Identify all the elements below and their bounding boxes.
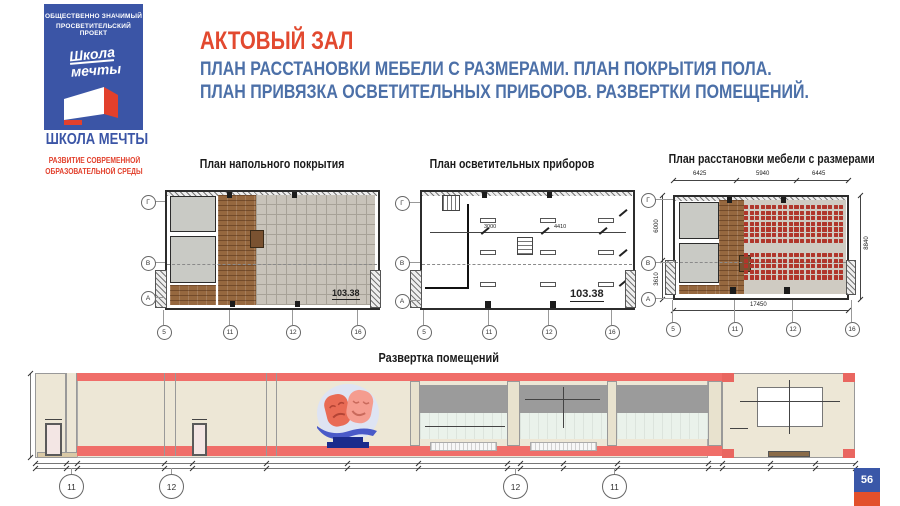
seat [750, 205, 754, 209]
seat [778, 239, 782, 243]
seat [783, 211, 787, 215]
seat [806, 216, 810, 220]
page-number-accent [854, 492, 880, 506]
light-fixture [540, 250, 556, 255]
logo-tagline-line2: ОБРАЗОВАТЕЛЬНОЙ СРЕДЫ [36, 167, 152, 176]
plan-furniture-title: План расстановки мебели с размерами [647, 152, 897, 166]
seat [789, 233, 793, 237]
seat [828, 205, 832, 209]
seat [755, 239, 759, 243]
seat [839, 216, 843, 220]
seat [828, 264, 832, 268]
seat [766, 270, 770, 274]
seat [794, 259, 798, 263]
seat [789, 270, 793, 274]
seat [761, 222, 765, 226]
elevation-title: Развертка помещений [364, 350, 514, 365]
elevation-drawing: 11121211 [25, 368, 885, 506]
axis-col-5: 5 [417, 325, 432, 340]
seat [766, 233, 770, 237]
light-fixture [480, 282, 496, 287]
page-subtitle-line2: ПЛАН ПРИВЯЗКА ОСВЕТИТЕЛЬНЫХ ПРИБОРОВ. РА… [200, 81, 900, 104]
page-title: АКТОВЫЙ ЗАЛ [200, 27, 387, 56]
light-fixture [598, 282, 614, 287]
axis-row-А: А [395, 294, 410, 309]
seat [750, 259, 754, 263]
seat [750, 239, 754, 243]
seat [800, 205, 804, 209]
seat [811, 239, 815, 243]
seat [750, 233, 754, 237]
seat [750, 264, 754, 268]
seat [828, 253, 832, 257]
seat [839, 275, 843, 279]
slide: ОБЩЕСТВЕННО ЗНАЧИМЫЙ ПРОСВЕТИТЕЛЬСКИЙ ПР… [0, 0, 900, 506]
seat [811, 275, 815, 279]
plan-floor-area-label: 103.38 [332, 288, 360, 300]
seat [783, 270, 787, 274]
seat [778, 264, 782, 268]
seat [744, 275, 748, 279]
dim-top-1: 6425 [693, 171, 706, 177]
seat [783, 264, 787, 268]
seat [828, 259, 832, 263]
seat [772, 275, 776, 279]
seat [744, 216, 748, 220]
elevation-axis-11: 11 [59, 474, 84, 499]
seat [755, 275, 759, 279]
seat [783, 259, 787, 263]
dim-left-bottom: 3610 [654, 264, 660, 294]
seat [806, 275, 810, 279]
seat [744, 270, 748, 274]
seat [750, 275, 754, 279]
seat [800, 264, 804, 268]
seat [822, 270, 826, 274]
seat [772, 239, 776, 243]
seat [761, 227, 765, 231]
seat [778, 211, 782, 215]
seat [828, 233, 832, 237]
plan-lighting-drawing: 3000 4410 103.38 ГВА5111216 [395, 183, 640, 343]
light-fixture [540, 218, 556, 223]
seat [806, 253, 810, 257]
seat [755, 216, 759, 220]
seat [750, 227, 754, 231]
axis-col-16: 16 [605, 325, 620, 340]
seat [744, 239, 748, 243]
page-subtitle-line1: ПЛАН РАССТАНОВКИ МЕБЕЛИ С РАЗМЕРАМИ. ПЛА… [200, 58, 897, 81]
seat [834, 222, 838, 226]
dim-left-top: 6000 [654, 211, 660, 241]
logo-brand: ШКОЛА МЕЧТЫ [36, 131, 152, 149]
dim-bottom: 17450 [750, 302, 767, 308]
seat [778, 275, 782, 279]
seat [839, 205, 843, 209]
seat [755, 253, 759, 257]
light-fixture [540, 282, 556, 287]
seat [761, 211, 765, 215]
plan-lighting-dim-b: 4410 [554, 224, 566, 230]
seat [755, 233, 759, 237]
plan-floor-drawing: 103.38 ГВА5111216 [140, 183, 390, 343]
seat [811, 211, 815, 215]
seat [822, 264, 826, 268]
seat [744, 253, 748, 257]
seat [834, 205, 838, 209]
seat [817, 239, 821, 243]
logo-tagline-line1: РАЗВИТИЕ СОВРЕМЕННОЙ [36, 156, 152, 165]
seat [778, 216, 782, 220]
seat [839, 253, 843, 257]
seat [822, 253, 826, 257]
axis-col-16: 16 [845, 322, 860, 337]
door-1 [45, 423, 62, 456]
seat [839, 211, 843, 215]
seat [811, 259, 815, 263]
seat [789, 275, 793, 279]
light-fixture [598, 250, 614, 255]
seat [811, 233, 815, 237]
seat [794, 264, 798, 268]
seat [772, 264, 776, 268]
seat [794, 275, 798, 279]
seat [811, 222, 815, 226]
seat [755, 222, 759, 226]
light-fixture [480, 218, 496, 223]
seat [761, 253, 765, 257]
logo-project-line2: ПРОСВЕТИТЕЛЬСКИЙ ПРОЕКТ [44, 23, 143, 37]
seat [800, 275, 804, 279]
axis-col-5: 5 [666, 322, 681, 337]
logo-project-line1: ОБЩЕСТВЕННО ЗНАЧИМЫЙ [44, 13, 143, 20]
axis-col-12: 12 [786, 322, 801, 337]
page-number-badge: 56 [854, 468, 880, 492]
light-fixture [480, 250, 496, 255]
seat [800, 222, 804, 226]
axis-col-11: 11 [223, 325, 238, 340]
seat [822, 275, 826, 279]
seat-grid-upper [744, 205, 843, 243]
axis-row-В: В [141, 256, 156, 271]
seat [766, 205, 770, 209]
seat [839, 233, 843, 237]
theater-masks-icon [313, 382, 383, 450]
seat [766, 239, 770, 243]
seat [766, 264, 770, 268]
seat [794, 233, 798, 237]
seat [800, 227, 804, 231]
seat [800, 211, 804, 215]
seat [817, 270, 821, 274]
seat [794, 205, 798, 209]
seat [834, 253, 838, 257]
seat [800, 259, 804, 263]
seat [761, 216, 765, 220]
axis-row-В: В [641, 256, 656, 271]
seat [828, 239, 832, 243]
axis-col-11: 11 [728, 322, 743, 337]
seat [755, 264, 759, 268]
seat [755, 227, 759, 231]
seat [766, 253, 770, 257]
seat [817, 205, 821, 209]
seat [750, 216, 754, 220]
seat [772, 259, 776, 263]
seat [839, 270, 843, 274]
seat [794, 211, 798, 215]
seat [789, 239, 793, 243]
seat [783, 216, 787, 220]
seat [744, 264, 748, 268]
seat [806, 259, 810, 263]
elevation-axis-11: 11 [602, 474, 627, 499]
seat [766, 222, 770, 226]
seat [811, 227, 815, 231]
dim-right: 8840 [864, 228, 870, 258]
seat [744, 233, 748, 237]
seat [789, 264, 793, 268]
seat [828, 222, 832, 226]
seat [817, 275, 821, 279]
elevation-axis-12: 12 [159, 474, 184, 499]
seat [822, 227, 826, 231]
seat [772, 270, 776, 274]
seat [806, 270, 810, 274]
seat [834, 233, 838, 237]
seat [761, 205, 765, 209]
seat [800, 253, 804, 257]
seat [789, 227, 793, 231]
axis-row-А: А [141, 291, 156, 306]
elevation-axis-12: 12 [503, 474, 528, 499]
seat [806, 227, 810, 231]
seat [811, 264, 815, 268]
seat [839, 227, 843, 231]
light-fixture [598, 218, 614, 223]
seat [811, 270, 815, 274]
seat [755, 211, 759, 215]
seat [772, 205, 776, 209]
axis-col-11: 11 [482, 325, 497, 340]
seat [750, 222, 754, 226]
seat [806, 211, 810, 215]
seat [783, 227, 787, 231]
axis-row-А: А [641, 292, 656, 307]
seat [811, 216, 815, 220]
plan-furniture-drawing: 6425 5940 6445 6000 3610 8840 17450 [640, 168, 900, 345]
page-number: 56 [861, 474, 873, 486]
seat [834, 211, 838, 215]
seat [817, 216, 821, 220]
axis-row-Г: Г [641, 193, 656, 208]
seat [755, 205, 759, 209]
axis-col-12: 12 [542, 325, 557, 340]
seat [761, 275, 765, 279]
seat [789, 211, 793, 215]
seat [817, 222, 821, 226]
seat [761, 259, 765, 263]
dim-top-2: 5940 [756, 171, 769, 177]
seat [766, 227, 770, 231]
seat [817, 233, 821, 237]
seat [750, 253, 754, 257]
seat [839, 222, 843, 226]
seat [828, 216, 832, 220]
seat [778, 233, 782, 237]
seat [772, 211, 776, 215]
seat [789, 253, 793, 257]
seat [761, 264, 765, 268]
seat [744, 259, 748, 263]
seat [817, 211, 821, 215]
axis-row-Г: Г [395, 196, 410, 211]
seat [817, 264, 821, 268]
seat [750, 270, 754, 274]
seat [761, 270, 765, 274]
seat [834, 275, 838, 279]
seat [834, 227, 838, 231]
seat [794, 227, 798, 231]
seat [806, 239, 810, 243]
seat [822, 211, 826, 215]
axis-col-12: 12 [286, 325, 301, 340]
seat [834, 216, 838, 220]
seat [822, 205, 826, 209]
door-2 [192, 423, 207, 456]
seat [789, 259, 793, 263]
seat [744, 222, 748, 226]
seat [794, 239, 798, 243]
seat [761, 239, 765, 243]
seat [822, 233, 826, 237]
seat [811, 253, 815, 257]
seat [772, 222, 776, 226]
seat [822, 222, 826, 226]
dim-top-3: 6445 [812, 171, 825, 177]
seat [778, 253, 782, 257]
seat [800, 233, 804, 237]
seat [783, 239, 787, 243]
seat [817, 259, 821, 263]
seat [811, 205, 815, 209]
seat [744, 227, 748, 231]
seat [822, 239, 826, 243]
seat [822, 216, 826, 220]
seat [783, 222, 787, 226]
plan-lighting-title: План осветительных приборов [392, 157, 632, 171]
seat [778, 222, 782, 226]
seat [800, 270, 804, 274]
seat [839, 264, 843, 268]
seat [828, 275, 832, 279]
seat [794, 216, 798, 220]
axis-col-5: 5 [157, 325, 172, 340]
seat [772, 216, 776, 220]
seat [839, 239, 843, 243]
seat [834, 264, 838, 268]
seat [822, 259, 826, 263]
seat [817, 227, 821, 231]
seat [794, 270, 798, 274]
seat [750, 211, 754, 215]
seat [828, 227, 832, 231]
seat-grid-lower [744, 253, 843, 280]
seat [789, 216, 793, 220]
seat [806, 264, 810, 268]
seat [789, 222, 793, 226]
seat [772, 227, 776, 231]
seat [806, 205, 810, 209]
seat [800, 216, 804, 220]
seat [783, 233, 787, 237]
axis-row-В: В [395, 256, 410, 271]
seat [806, 233, 810, 237]
seat [744, 205, 748, 209]
seat [828, 270, 832, 274]
plan-floor-title: План напольного покрытия [152, 157, 392, 171]
logo-building-icon [58, 84, 130, 126]
seat [800, 239, 804, 243]
seat [755, 270, 759, 274]
seat [766, 259, 770, 263]
seat [806, 222, 810, 226]
seat [789, 205, 793, 209]
seat [828, 211, 832, 215]
seat [778, 227, 782, 231]
seat [755, 259, 759, 263]
seat [839, 259, 843, 263]
seat [766, 211, 770, 215]
seat [834, 270, 838, 274]
seat [834, 239, 838, 243]
seat [761, 233, 765, 237]
seat [766, 275, 770, 279]
seat [766, 216, 770, 220]
seat [778, 270, 782, 274]
seat [794, 253, 798, 257]
seat [783, 253, 787, 257]
seat [783, 205, 787, 209]
plan-lighting-area-label: 103.38 [570, 288, 604, 302]
logo-block: ОБЩЕСТВЕННО ЗНАЧИМЫЙ ПРОСВЕТИТЕЛЬСКИЙ ПР… [44, 4, 143, 130]
seat [778, 259, 782, 263]
seat [783, 275, 787, 279]
axis-row-Г: Г [141, 195, 156, 210]
seat [778, 205, 782, 209]
seat [772, 233, 776, 237]
seat [772, 253, 776, 257]
axis-col-16: 16 [351, 325, 366, 340]
seat [744, 211, 748, 215]
seat [817, 253, 821, 257]
seat [834, 259, 838, 263]
seat [794, 222, 798, 226]
projection-screen [757, 387, 823, 427]
